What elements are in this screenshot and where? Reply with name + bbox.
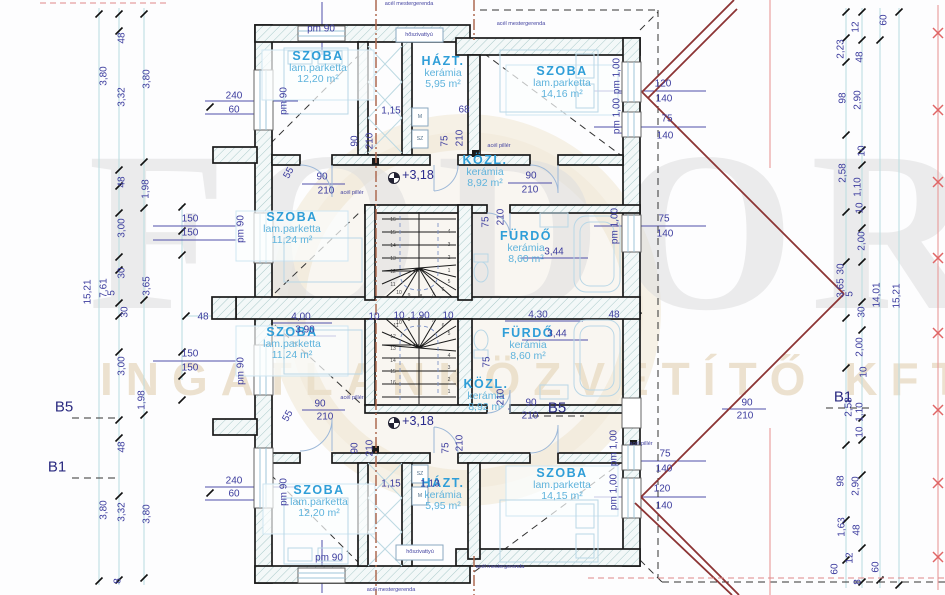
dimension-text: 3,80: [99, 500, 110, 519]
stair-step-number: 1: [448, 389, 451, 395]
dimension-text: pm 90: [279, 478, 290, 506]
dimension-text: 3,80: [142, 69, 153, 88]
dimension-text: 60: [879, 14, 890, 25]
room-name: SZOBA: [533, 468, 591, 480]
dimension-text: 210: [455, 130, 466, 147]
note-text: hőszivattyú: [406, 549, 434, 555]
dimension-text: 2,58: [838, 163, 849, 182]
dimension-text: pm 1,00: [612, 58, 623, 94]
note-text: acél mestergerenda: [497, 21, 546, 27]
dimension-text: 150: [182, 214, 199, 225]
room-area: 8,92 m²: [463, 178, 508, 190]
note-text: acél mestergerenda: [385, 1, 434, 7]
dimension-text: 4,30: [528, 310, 547, 321]
room-label: SZOBAlam.parketta12,20 m²: [289, 51, 347, 86]
dimension-text: 15,21: [892, 283, 903, 308]
stair-step-number: 13: [390, 346, 396, 352]
dimension-text: 3,44: [547, 329, 566, 340]
dimension-text: 12: [845, 552, 856, 563]
dimension-text: 1,10: [855, 402, 866, 421]
dimension-text: 150: [182, 363, 199, 374]
dimension-text: 3,65: [142, 276, 153, 295]
dimension-text: 2,00: [855, 337, 866, 356]
dimension-text: 10: [855, 202, 866, 213]
stair-step-number: 4: [448, 229, 451, 235]
dimension-text: 75: [441, 442, 452, 453]
room-area: 5,95 m²: [422, 79, 465, 91]
floor-plan-canvas: FODOR INGATLANKÖZVETÍTŐ KFT: [0, 0, 945, 595]
room-area: 14,15 m²: [533, 491, 591, 503]
dimension-text: 48: [852, 524, 863, 535]
dimension-text: 75: [661, 114, 672, 125]
dimension-text: 120: [655, 79, 672, 90]
dimension-text: 48: [608, 310, 619, 321]
dimension-text: pm 90: [307, 24, 335, 35]
dimension-text: 8: [853, 579, 864, 585]
dimension-text: 90: [314, 399, 325, 410]
dimension-text: 2,00: [857, 231, 868, 250]
stair-step-number: 13: [390, 256, 396, 262]
dimension-text: 3,80: [99, 66, 110, 85]
dimension-text: 8: [113, 578, 124, 584]
dimension-text: pm 90: [236, 357, 247, 385]
room-name: FÜRDŐ: [500, 231, 552, 243]
room-label: SZOBAlam.parketta11,24 m²: [263, 212, 321, 247]
dimension-text: 1,15: [381, 479, 400, 490]
dimension-text: 12: [851, 21, 862, 32]
stair-step-number: 1: [448, 268, 451, 274]
stair-step-number: 11: [390, 282, 395, 288]
dimension-text: 90: [525, 398, 536, 409]
stair-step-number: 15: [390, 369, 396, 375]
stair-step-number: 9: [408, 293, 411, 299]
dimension-text: 210: [365, 133, 376, 150]
room-label: HÁZT.kerámia5,95 m²: [422, 56, 465, 91]
dimension-text: 60: [871, 561, 882, 572]
note-text: acél mestergerenda: [367, 587, 416, 593]
dimension-text: 1,10: [853, 177, 864, 196]
text-overlay: SZOBAlam.parketta12,20 m²HÁZT.kerámia5,9…: [0, 0, 945, 595]
dimension-text: 1,98: [141, 179, 152, 198]
stair-step-number: 12: [390, 269, 396, 275]
dimension-text: 210: [522, 411, 539, 422]
note-text: acél pillér: [340, 190, 363, 196]
room-label: FÜRDŐkerámia8,60 m²: [502, 328, 554, 363]
dimension-text: pm 1,00: [609, 430, 620, 466]
dimension-text: 98: [838, 92, 849, 103]
dimension-text: 140: [657, 131, 674, 142]
stair-step-number: 8: [420, 294, 423, 300]
dimension-text: 75: [658, 214, 669, 225]
room-label: SZOBAlam.parketta14,15 m²: [533, 468, 591, 503]
room-area: 11,24 m²: [263, 350, 321, 362]
section-marker: B1: [48, 459, 66, 476]
dimension-text: pm 1,00: [610, 208, 621, 244]
stair-step-number: 6: [442, 323, 445, 329]
stair-step-number: 3: [448, 242, 451, 248]
appliance-label: SZ: [417, 471, 423, 477]
dimension-text: pm 90: [236, 215, 247, 243]
dimension-text: 210: [318, 186, 335, 197]
dimension-text: pm 90: [315, 553, 343, 564]
dimension-text: 48: [855, 51, 866, 62]
dimension-text: 140: [656, 94, 673, 105]
dimension-text: 30: [117, 267, 128, 278]
dimension-text: 48: [117, 176, 128, 187]
dimension-text: 60: [228, 489, 239, 500]
section-marker: B5: [55, 399, 73, 416]
room-area: 12,20 m²: [290, 508, 348, 520]
dimension-text: 10: [855, 426, 866, 437]
room-area: 11,24 m²: [263, 235, 321, 247]
room-area: 8,60 m²: [502, 351, 554, 363]
dimension-text: 60: [830, 563, 841, 574]
dimension-text: 5: [107, 290, 118, 296]
room-label: KÖZL.kerámia8,92 m²: [463, 155, 508, 190]
level-marker: +3,18: [402, 414, 434, 428]
dimension-text: 30: [120, 306, 131, 317]
dimension-text: 210: [522, 185, 539, 196]
dimension-text: 140: [656, 501, 673, 512]
dimension-text: 3,32: [117, 87, 128, 106]
dimension-text: 3,00: [117, 218, 128, 237]
dimension-text: 30: [836, 263, 847, 274]
dimension-text: 90: [741, 398, 752, 409]
dimension-text: 10: [368, 312, 379, 323]
dimension-text: 90: [316, 172, 327, 183]
room-area: 14,16 m²: [533, 89, 591, 101]
dimension-text: 120: [654, 484, 671, 495]
dimension-text: 2,23: [836, 39, 847, 58]
dimension-text: 3,90: [295, 325, 314, 336]
dimension-text: 90: [350, 135, 361, 146]
dimension-text: 5: [845, 291, 856, 297]
room-name: SZOBA: [263, 212, 321, 224]
stair-step-number: 5: [448, 279, 451, 285]
dimension-text: 210: [496, 209, 507, 226]
appliance-label: SZ: [417, 136, 423, 142]
dimension-text: 2,90: [851, 476, 862, 495]
appliance-label: M: [418, 114, 422, 120]
stair-step-number: 3: [448, 365, 451, 371]
dimension-text: 3,44: [544, 247, 563, 258]
room-label: SZOBAlam.parketta14,16 m²: [533, 66, 591, 101]
dimension-text: 75: [481, 216, 492, 227]
dimension-text: 10: [859, 366, 870, 377]
note-text: acél pillér: [487, 143, 510, 149]
section-marker: B1: [834, 389, 852, 406]
dimension-text: pm 90: [279, 87, 290, 115]
dimension-text: 3,00: [117, 356, 128, 375]
dimension-text: 240: [226, 91, 243, 102]
note-text: acél pillér: [629, 441, 652, 447]
stair-step-number: 7: [432, 292, 435, 298]
dimension-text: 140: [657, 229, 674, 240]
room-label: SZOBAlam.parketta12,20 m²: [290, 485, 348, 520]
room-name: HÁZT.: [422, 56, 465, 68]
stair-step-number: 5: [448, 331, 451, 337]
stair-step-number: 16: [390, 380, 396, 386]
room-area: 12,20 m²: [289, 74, 347, 86]
dimension-text: 75: [440, 135, 451, 146]
stair-step-number: 10: [396, 320, 402, 326]
dimension-text: 150: [182, 349, 199, 360]
dimension-text: 48: [117, 441, 128, 452]
dimension-text: 140: [656, 464, 673, 475]
level-marker: +3,18: [402, 168, 434, 182]
dimension-text: 48: [197, 312, 208, 323]
dimension-text: 90: [350, 442, 361, 453]
dimension-text: 75: [482, 356, 493, 367]
dimension-text: 1,63: [837, 517, 848, 536]
dimension-text: 48: [117, 32, 128, 43]
room-name: SZOBA: [533, 66, 591, 78]
stair-step-number: 12: [390, 334, 396, 340]
dimension-text: 150: [182, 228, 199, 239]
dimension-text: 210: [365, 440, 376, 457]
dimension-text: 98: [836, 475, 847, 486]
room-name: KÖZL.: [463, 155, 508, 167]
dimension-text: 30: [857, 306, 868, 317]
room-name: SZOBA: [290, 485, 348, 497]
room-area: 5,95 m²: [422, 501, 465, 513]
dimension-text: 68: [458, 105, 469, 116]
stair-step-number: 7: [432, 318, 435, 324]
stair-step-number: 6: [442, 287, 445, 293]
dimension-text: 210: [737, 411, 754, 422]
dimension-text: 15,21: [83, 279, 94, 304]
dimension-text: pm 1,00: [612, 98, 623, 134]
dimension-text: 3,80: [142, 504, 153, 523]
dimension-text: 3,32: [117, 502, 128, 521]
stair-step-number: 2: [448, 377, 451, 383]
dimension-text: 210: [496, 389, 507, 406]
dimension-text: 10: [857, 145, 868, 156]
dimension-text: 240: [226, 476, 243, 487]
stair-step-number: 10: [396, 290, 402, 296]
dimension-text: 60: [228, 105, 239, 116]
note-text: acél pillér: [340, 395, 363, 401]
stair-step-number: 15: [390, 230, 396, 236]
dimension-text: 2,90: [853, 90, 864, 109]
stair-step-number: 8: [420, 316, 423, 322]
dimension-text: 1,15: [381, 106, 400, 117]
dimension-text: 90: [525, 171, 536, 182]
dimension-text: 1,98: [137, 390, 148, 409]
stair-step-number: 14: [390, 358, 396, 364]
room-name: SZOBA: [289, 51, 347, 63]
stair-step-number: 4: [448, 353, 451, 359]
dimension-text: 55: [280, 408, 295, 423]
stair-step-number: 14: [390, 243, 396, 249]
dimension-text: 75: [659, 449, 670, 460]
section-marker: B5: [548, 400, 566, 417]
stair-step-number: 9: [408, 317, 411, 323]
note-text: acél mestergerenda: [476, 564, 525, 570]
dimension-text: 210: [317, 412, 334, 423]
room-name: FÜRDŐ: [502, 328, 554, 340]
dimension-text: 1,13: [420, 479, 439, 490]
appliance-label: M: [418, 493, 422, 499]
dimension-text: pm 1,00: [609, 474, 620, 510]
dimension-text: 55: [281, 165, 296, 180]
note-text: hőszivattyú: [405, 32, 433, 38]
stair-step-number: 2: [448, 255, 451, 261]
dimension-text: 14,01: [872, 282, 883, 307]
dimension-text: 10: [442, 311, 453, 322]
dimension-text: 210: [455, 435, 466, 452]
stair-step-number: 16: [390, 217, 396, 223]
dimension-text: 4,00: [291, 312, 310, 323]
